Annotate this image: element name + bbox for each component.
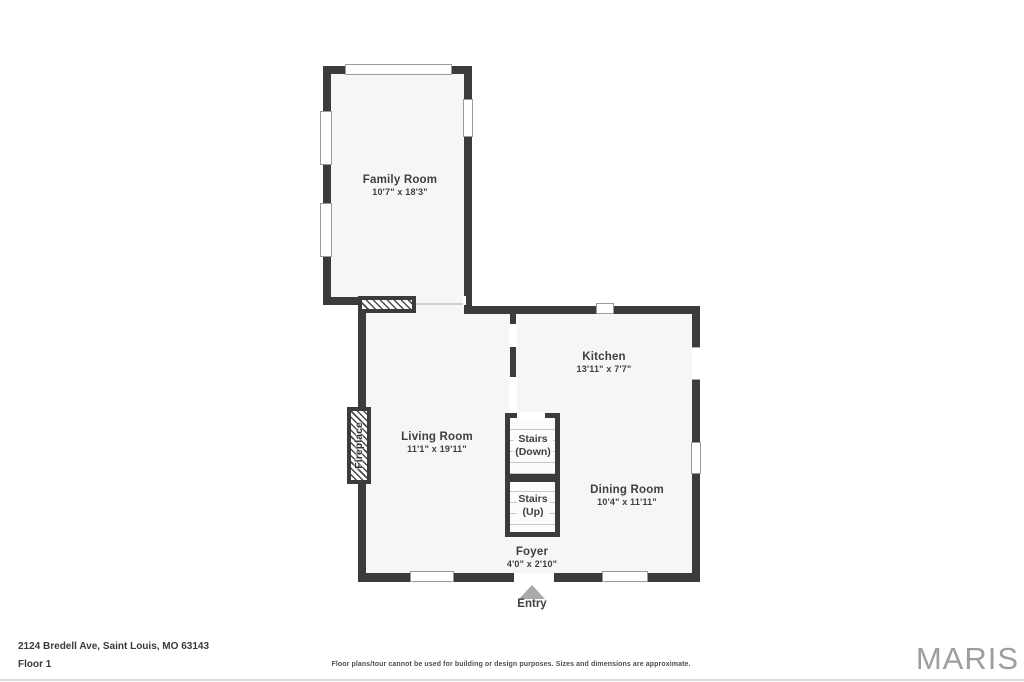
stairs-down-line1: Stairs	[515, 433, 551, 446]
floor-number: Floor 1	[18, 659, 51, 670]
family-room-label: Family Room 10'7" x 18'3"	[363, 174, 437, 197]
family-living-opening-line	[416, 303, 463, 305]
foyer-label: Foyer 4'0" x 2'10"	[507, 546, 557, 569]
stairs-top-opening	[517, 412, 545, 419]
dining-room-label: Dining Room 10'4" x 11'11"	[590, 484, 664, 507]
foyer-dims: 4'0" x 2'10"	[507, 559, 557, 569]
living-room-window-bottom	[410, 571, 454, 582]
family-room-window-top	[345, 64, 452, 75]
living-room-dims: 11'1" x 19'11"	[401, 444, 473, 454]
stairs-down-label: Stairs (Down)	[513, 433, 553, 459]
living-room-name: Living Room	[401, 431, 473, 443]
kitchen-top-wall	[464, 306, 700, 314]
living-room-left-wall-upper	[358, 311, 366, 409]
family-room-window-left-2	[320, 203, 332, 257]
divider-wall-segment	[510, 347, 516, 377]
disclaimer-text: Floor plans/tour cannot be used for buil…	[311, 661, 711, 668]
family-room-window-left-1	[320, 111, 332, 165]
kitchen-label: Kitchen 13'11" x 7'7"	[577, 351, 632, 374]
family-room-left-wall	[323, 66, 331, 305]
divider-wall-stub	[510, 313, 516, 324]
page-bottom-edge	[0, 679, 1024, 681]
floor-plan-page: Fireplace Stairs (Down) Stairs (Up) Fami…	[0, 0, 1024, 682]
entry-label: Entry	[517, 598, 546, 610]
chimney-hatch	[358, 296, 416, 313]
kitchen-door-opening-lower	[509, 377, 517, 413]
living-room-left-wall-lower	[358, 481, 366, 582]
kitchen-top-window	[596, 303, 614, 314]
kitchen-right-window-opening	[692, 347, 700, 380]
kitchen-door-opening	[509, 323, 517, 348]
living-room-label: Living Room 11'1" x 19'11"	[401, 431, 473, 454]
stairs-down-line2: (Down)	[515, 446, 551, 459]
entry-arrow-icon	[519, 585, 545, 599]
entry-door-opening	[514, 573, 554, 582]
family-room-bottom-wall	[323, 297, 362, 305]
stairs-middle-wall	[505, 474, 560, 482]
kitchen-dims: 13'11" x 7'7"	[577, 364, 632, 374]
fireplace: Fireplace	[347, 407, 371, 484]
family-room-name: Family Room	[363, 174, 437, 186]
stairs-up-label: Stairs (Up)	[516, 493, 549, 519]
maris-logo: MARIS	[916, 641, 1019, 677]
property-address: 2124 Bredell Ave, Saint Louis, MO 63143	[18, 641, 209, 652]
stairs-up-line2: (Up)	[518, 506, 547, 519]
family-room-dims: 10'7" x 18'3"	[363, 187, 437, 197]
dining-room-name: Dining Room	[590, 484, 664, 496]
dining-room-dims: 10'4" x 11'11"	[590, 497, 664, 507]
kitchen-name: Kitchen	[577, 351, 632, 363]
stairs-up-line1: Stairs	[518, 493, 547, 506]
family-room-window-right	[463, 99, 473, 137]
foyer-name: Foyer	[507, 546, 557, 558]
fireplace-label: Fireplace	[354, 422, 365, 469]
dining-room-window-bottom	[602, 571, 648, 582]
dining-room-window-right	[691, 442, 701, 474]
